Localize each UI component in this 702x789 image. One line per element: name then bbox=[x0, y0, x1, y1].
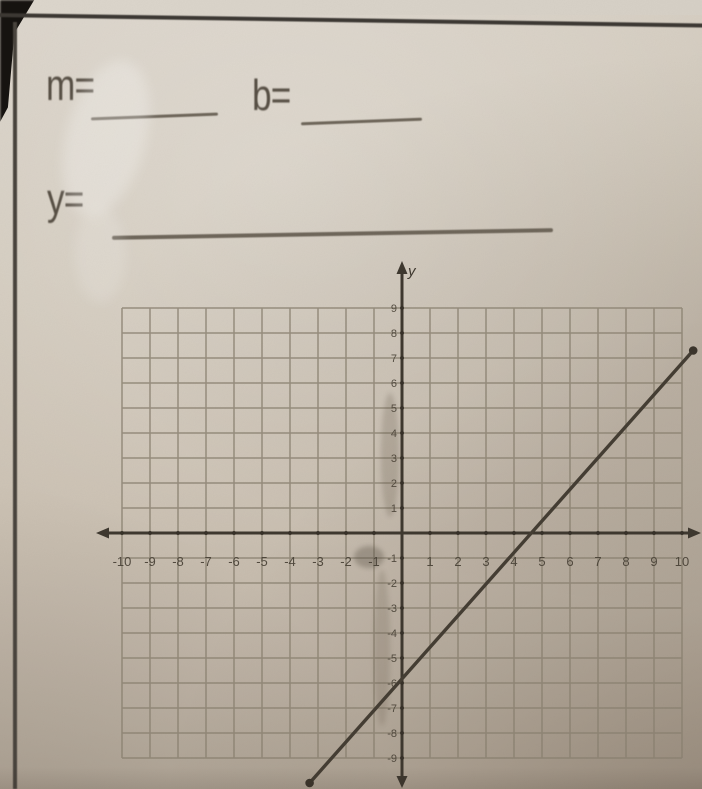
svg-text:-5: -5 bbox=[256, 554, 268, 569]
svg-text:-1: -1 bbox=[387, 553, 397, 565]
svg-text:7: 7 bbox=[391, 353, 397, 365]
svg-text:-10: -10 bbox=[113, 554, 132, 569]
worksheet-photo: m= b= y= -10-9-8-7-6-5-4-3-2-11234567891… bbox=[0, 0, 702, 789]
svg-text:-8: -8 bbox=[172, 554, 184, 569]
svg-text:-9: -9 bbox=[144, 554, 156, 569]
svg-text:8: 8 bbox=[391, 328, 397, 340]
svg-text:-3: -3 bbox=[312, 554, 324, 569]
svg-text:1: 1 bbox=[426, 554, 433, 569]
photo-edge-shadow bbox=[0, 767, 702, 789]
svg-text:-7: -7 bbox=[200, 554, 212, 569]
svg-text:-4: -4 bbox=[284, 554, 296, 569]
coordinate-plane-graph: -10-9-8-7-6-5-4-3-2-11234567891098765432… bbox=[0, 0, 702, 789]
svg-text:2: 2 bbox=[454, 554, 461, 569]
svg-text:-9: -9 bbox=[387, 753, 397, 765]
svg-text:10: 10 bbox=[675, 554, 689, 569]
svg-text:7: 7 bbox=[594, 554, 601, 569]
svg-text:-6: -6 bbox=[228, 554, 240, 569]
svg-text:-2: -2 bbox=[340, 554, 352, 569]
svg-text:6: 6 bbox=[391, 378, 397, 390]
svg-text:-8: -8 bbox=[387, 728, 397, 740]
svg-text:9: 9 bbox=[650, 554, 657, 569]
svg-text:6: 6 bbox=[566, 554, 573, 569]
svg-text:8: 8 bbox=[622, 554, 629, 569]
svg-text:5: 5 bbox=[538, 554, 545, 569]
svg-text:3: 3 bbox=[482, 554, 489, 569]
svg-text:9: 9 bbox=[391, 303, 397, 315]
svg-text:-2: -2 bbox=[387, 578, 397, 590]
svg-text:y: y bbox=[407, 263, 417, 280]
svg-text:-7: -7 bbox=[387, 703, 397, 715]
